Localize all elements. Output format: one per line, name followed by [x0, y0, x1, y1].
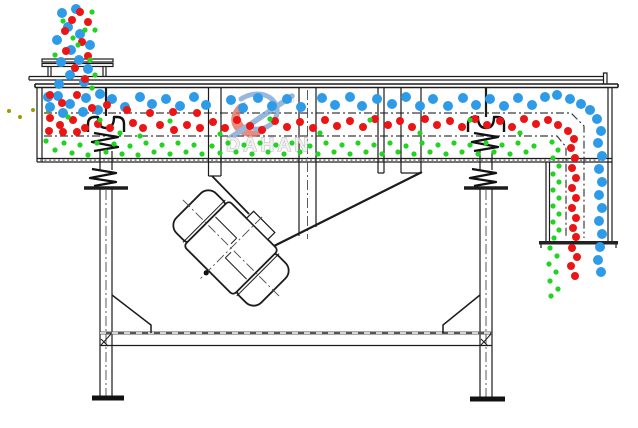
blue-particle — [330, 100, 340, 110]
blue-particle — [428, 94, 438, 104]
green-particle — [355, 140, 360, 145]
blue-particle — [458, 93, 468, 103]
red-particle — [45, 127, 53, 135]
green-particle — [60, 18, 65, 23]
red-particle — [572, 233, 580, 241]
green-particle — [65, 114, 70, 119]
green-particle — [553, 269, 558, 274]
red-particle — [81, 124, 89, 132]
red-particle — [446, 117, 454, 125]
red-particle — [84, 18, 92, 26]
red-particle — [46, 114, 54, 122]
red-particle — [433, 121, 441, 129]
red-particle — [193, 109, 201, 117]
green-particle — [371, 142, 376, 147]
red-particle — [76, 8, 84, 16]
blue-particle — [74, 55, 84, 65]
green-particle — [507, 151, 512, 156]
green-particle — [103, 149, 108, 154]
green-particle — [61, 140, 66, 145]
green-particle — [435, 142, 440, 147]
green-particle — [411, 151, 416, 156]
red-particle — [408, 123, 416, 131]
left-lower-spring — [90, 169, 116, 186]
blue-particle — [226, 95, 236, 105]
red-particle — [296, 118, 304, 126]
green-particle — [555, 147, 560, 152]
red-particle — [73, 128, 81, 136]
green-particle — [517, 130, 522, 135]
blue-particle — [593, 255, 603, 265]
blue-particle — [81, 93, 91, 103]
red-particle — [156, 121, 164, 129]
green-particle — [143, 140, 148, 145]
red-particle — [233, 116, 241, 124]
red-particle — [572, 174, 580, 182]
vibration-motor — [152, 169, 310, 327]
vibrating-screen-diagram: DAHAN ® — [0, 0, 638, 428]
green-particle — [556, 163, 561, 168]
blue-particle — [78, 107, 88, 117]
red-particle — [571, 154, 579, 162]
red-particle — [146, 109, 154, 117]
green-particle — [135, 152, 140, 157]
olive-particle — [31, 108, 35, 112]
green-particle — [331, 149, 336, 154]
blue-particle — [593, 138, 603, 148]
olive-particle — [7, 109, 11, 113]
green-particle — [257, 140, 262, 145]
red-particle — [568, 164, 576, 172]
green-particle — [475, 151, 480, 156]
olive-particles — [7, 108, 50, 119]
blue-particle — [576, 99, 586, 109]
blue-particle — [83, 64, 93, 74]
blue-particle — [296, 102, 306, 112]
red-particle — [508, 123, 516, 131]
green-particle — [117, 130, 122, 135]
green-particle — [555, 286, 560, 291]
green-particle — [69, 150, 74, 155]
green-particle — [556, 195, 561, 200]
blue-particle — [238, 103, 248, 113]
blue-particle — [415, 101, 425, 111]
green-particle — [551, 235, 556, 240]
blue-particle — [357, 101, 367, 111]
blue-particle — [161, 94, 171, 104]
blue-particle — [317, 93, 327, 103]
blue-particle — [513, 93, 523, 103]
red-particle — [309, 124, 317, 132]
red-particle — [572, 214, 580, 222]
red-particle — [71, 64, 79, 72]
red-particle — [421, 115, 429, 123]
green-particle — [92, 27, 97, 32]
green-particle — [550, 203, 555, 208]
blue-particle — [471, 100, 481, 110]
blue-particle — [135, 92, 145, 102]
red-particle — [568, 184, 576, 192]
green-particle — [419, 140, 424, 145]
green-particle — [137, 133, 142, 138]
green-particle — [451, 140, 456, 145]
green-particle — [387, 140, 392, 145]
green-particle — [89, 9, 94, 14]
green-particle — [367, 117, 372, 122]
green-particle — [265, 149, 270, 154]
blue-particle — [201, 100, 211, 110]
blue-particle — [540, 92, 550, 102]
green-particle — [159, 142, 164, 147]
blue-particle — [594, 216, 604, 226]
green-particle — [70, 35, 75, 40]
green-particle — [347, 151, 352, 156]
blue-particle — [147, 99, 157, 109]
blue-particle — [54, 79, 64, 89]
green-particle — [119, 151, 124, 156]
green-particle — [427, 149, 432, 154]
green-particle — [547, 245, 552, 250]
blue-particle — [65, 99, 75, 109]
blue-particle — [596, 267, 606, 277]
red-particle — [129, 119, 137, 127]
blue-particle — [597, 177, 607, 187]
green-particle — [556, 179, 561, 184]
right-lower-spring — [470, 169, 496, 186]
green-particle — [483, 140, 488, 145]
blue-particle — [585, 105, 595, 115]
red-particle — [568, 244, 576, 252]
blue-particles — [43, 4, 607, 277]
green-particle — [550, 171, 555, 176]
red-particle — [46, 91, 54, 99]
green-particle — [167, 151, 172, 156]
green-particle — [281, 151, 286, 156]
green-particle — [499, 142, 504, 147]
green-particle — [289, 140, 294, 145]
green-particle — [209, 143, 214, 148]
red-particle — [73, 91, 81, 99]
green-particle — [233, 149, 238, 154]
red-particle — [103, 101, 111, 109]
olive-particle — [18, 115, 22, 119]
green-particle — [225, 140, 230, 145]
blue-particle — [485, 94, 495, 104]
green-particle — [127, 143, 132, 148]
blue-particle — [594, 190, 604, 200]
green-particle — [549, 139, 554, 144]
red-particle — [169, 108, 177, 116]
red-particle — [196, 124, 204, 132]
blue-particle — [443, 101, 453, 111]
blue-particle — [597, 151, 607, 161]
red-particle — [61, 27, 69, 35]
green-particle — [548, 293, 553, 298]
red-particle — [554, 121, 562, 129]
blue-particle — [95, 89, 105, 99]
green-particle — [403, 143, 408, 148]
green-particle — [395, 149, 400, 154]
blue-particle — [253, 93, 263, 103]
blue-particle — [282, 94, 292, 104]
red-particle — [458, 123, 466, 131]
green-particle — [273, 142, 278, 147]
red-particle — [59, 128, 67, 136]
red-particle — [209, 118, 217, 126]
green-particle — [443, 151, 448, 156]
blue-particle — [52, 35, 62, 45]
green-particle — [363, 149, 368, 154]
red-particle — [246, 122, 254, 130]
blue-particle — [401, 92, 411, 102]
blue-particle — [527, 100, 537, 110]
green-particle — [175, 140, 180, 145]
green-particle — [241, 142, 246, 147]
green-particle — [554, 253, 559, 258]
blue-particle — [565, 94, 575, 104]
red-particle — [564, 127, 572, 135]
green-particle — [297, 149, 302, 154]
red-particle — [520, 115, 528, 123]
red-particle — [571, 272, 579, 280]
green-particle — [94, 140, 99, 145]
green-particle — [199, 151, 204, 156]
red-particle — [106, 124, 114, 132]
blue-particle — [345, 92, 355, 102]
green-particle — [379, 151, 384, 156]
blue-particle — [552, 90, 562, 100]
green-particle — [550, 155, 555, 160]
blue-particle — [189, 92, 199, 102]
red-particle — [58, 99, 66, 107]
green-particle — [523, 149, 528, 154]
green-particle — [515, 140, 520, 145]
red-particle — [384, 121, 392, 129]
green-particle — [550, 219, 555, 224]
red-particle — [81, 75, 89, 83]
red-particle — [568, 204, 576, 212]
green-particle — [417, 130, 422, 135]
green-particle — [97, 117, 102, 122]
green-particle — [249, 151, 254, 156]
green-particle — [550, 187, 555, 192]
red-particle — [283, 123, 291, 131]
blue-particle — [372, 94, 382, 104]
green-particle — [87, 57, 92, 62]
red-particle — [333, 122, 341, 130]
blue-particle — [596, 126, 606, 136]
red-particle — [567, 262, 575, 270]
blue-particle — [499, 101, 509, 111]
diagram-canvas: DAHAN ® — [0, 0, 638, 428]
green-particle — [111, 141, 116, 146]
red-particle — [183, 121, 191, 129]
green-particle — [459, 149, 464, 154]
blue-particle — [175, 101, 185, 111]
green-particle — [547, 278, 552, 283]
blue-particle — [267, 101, 277, 111]
red-particle — [321, 116, 329, 124]
blue-particle — [597, 229, 607, 239]
green-particle — [89, 85, 94, 90]
red-particle — [258, 126, 266, 134]
blue-particle — [56, 57, 66, 67]
red-particle — [496, 117, 504, 125]
red-particle — [123, 106, 131, 114]
blue-particle — [597, 203, 607, 213]
green-particle — [82, 27, 87, 32]
green-particle — [556, 227, 561, 232]
green-particle — [77, 142, 82, 147]
red-particle — [532, 120, 540, 128]
blue-particle — [45, 102, 55, 112]
blue-particle — [387, 99, 397, 109]
green-particle — [92, 72, 97, 77]
discharge-flange — [539, 241, 618, 245]
red-particle — [221, 124, 229, 132]
green-particle — [85, 152, 90, 157]
red-particle — [544, 116, 552, 124]
green-particle — [546, 261, 551, 266]
green-particle — [151, 149, 156, 154]
green-particle — [267, 116, 272, 121]
red-particle — [570, 135, 578, 143]
red-particle — [572, 194, 580, 202]
green-particle — [167, 118, 172, 123]
red-particle — [170, 126, 178, 134]
green-particle — [217, 131, 222, 136]
blue-particle — [85, 40, 95, 50]
green-particle — [556, 211, 561, 216]
red-particle — [359, 123, 367, 131]
red-particle — [139, 124, 147, 132]
green-particle — [191, 142, 196, 147]
blue-particle — [594, 164, 604, 174]
green-particle — [52, 52, 57, 57]
green-particle — [315, 151, 320, 156]
green-particle — [43, 138, 48, 143]
red-particle — [56, 121, 64, 129]
green-particle — [467, 142, 472, 147]
blue-particle — [592, 114, 602, 124]
red-particle — [62, 47, 70, 55]
red-particle — [346, 117, 354, 125]
green-particle — [183, 149, 188, 154]
green-particle — [323, 140, 328, 145]
red-particle — [483, 121, 491, 129]
green-particle — [52, 147, 57, 152]
red-particle — [567, 144, 575, 152]
green-particle — [217, 150, 222, 155]
red-particle — [88, 104, 96, 112]
green-particle — [467, 117, 472, 122]
green-particle — [307, 143, 312, 148]
red-particle — [396, 117, 404, 125]
red-particle — [569, 224, 577, 232]
green-particle — [75, 42, 80, 47]
red-particle — [573, 253, 581, 261]
blue-particle — [595, 242, 605, 252]
blue-particle — [57, 8, 67, 18]
green-particle — [491, 149, 496, 154]
red-particle — [68, 16, 76, 24]
green-particle — [531, 143, 536, 148]
green-particle — [339, 142, 344, 147]
green-particle — [317, 130, 322, 135]
